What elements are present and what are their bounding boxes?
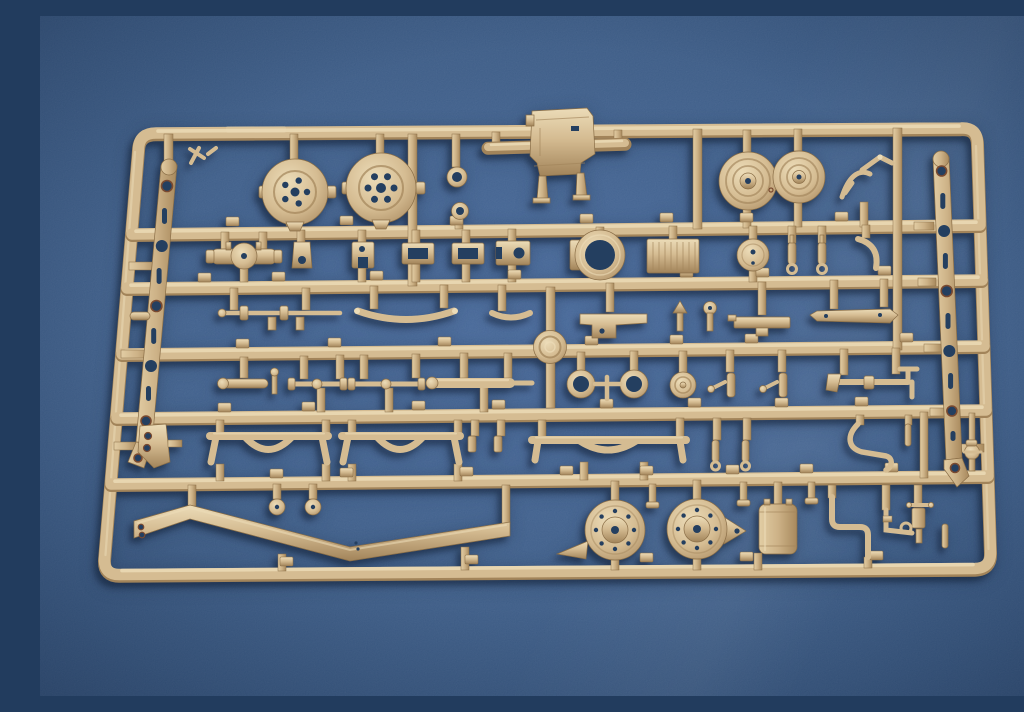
part-round-cover xyxy=(737,239,769,271)
part-left-capsule xyxy=(130,312,150,320)
part-capsule-rod xyxy=(218,378,269,389)
part-small-ring-b xyxy=(452,203,469,220)
embossed-brand-stamp xyxy=(226,126,286,133)
part-cylindrical-tank xyxy=(759,499,797,554)
part-small-pin-right xyxy=(905,424,911,446)
part-t-stud xyxy=(271,368,279,394)
part-small-bracket xyxy=(292,242,312,268)
part-pulley-a xyxy=(719,152,777,210)
part-stem-disc-a xyxy=(269,499,285,515)
part-cone-disc xyxy=(670,372,696,398)
part-equipment-box-a xyxy=(402,243,434,264)
part-angled-beam xyxy=(810,309,898,323)
part-small-ring-a xyxy=(447,167,467,187)
part-plate-with-hole xyxy=(496,241,530,265)
part-stem-disc-b xyxy=(305,499,321,515)
part-pulley-b xyxy=(773,151,825,203)
part-equipment-box-b xyxy=(452,243,484,264)
part-u-bracket xyxy=(352,242,374,268)
part-small-pin-bottom-right xyxy=(942,524,948,548)
part-embossed-logo-disc xyxy=(534,331,567,364)
sprue-photo-canvas xyxy=(40,16,1024,696)
part-ribbed-radiator xyxy=(647,239,699,273)
photo-model-kit-sprue: A single tan (dark-yellow styrene) injec… xyxy=(40,16,1024,696)
